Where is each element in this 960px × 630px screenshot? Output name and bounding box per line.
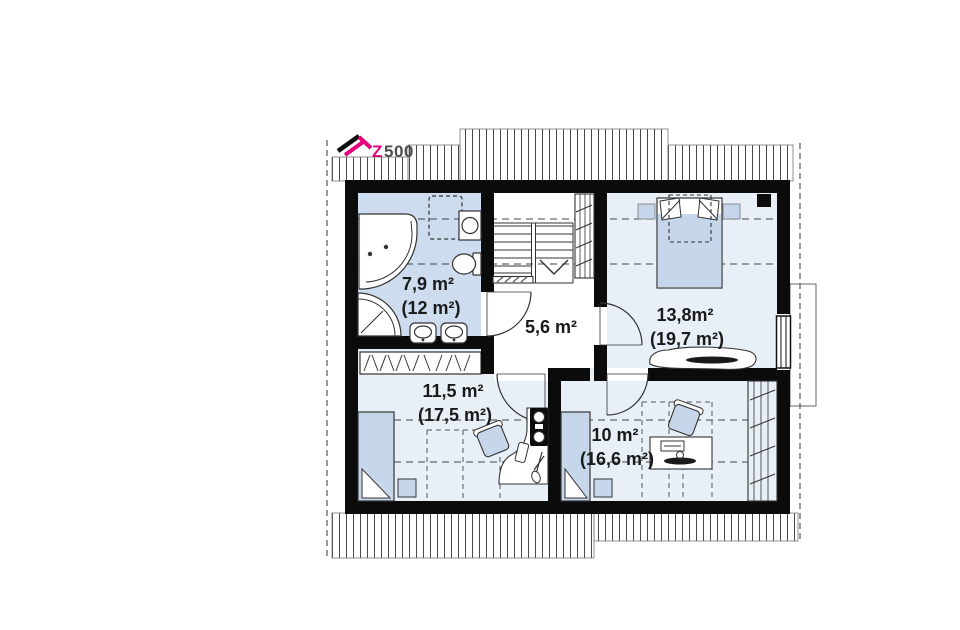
hall-area-label: 5,6 m² [525,317,577,337]
bedroom-area-label: 13,8m² [656,305,713,325]
room-left-area-label: 11,5 m² [422,381,483,401]
nightstand-icon [638,204,655,219]
toilet-icon [453,253,482,275]
bathroom-area-label: 7,9 m² [402,274,454,294]
washing-machine-icon [459,211,481,240]
room-right-area-label: 10 m² [591,425,638,445]
nightstand-icon [723,204,740,219]
side-table-icon [398,479,416,497]
logo-text: 500 [384,142,414,161]
bedroom-total-label: (19,7 m²) [650,329,724,349]
side-table-icon [594,479,612,497]
floor-plan-page: 7,9 m² (12 m²) 5,6 m² 13,8m² (19,7 m²) 1… [0,0,960,630]
bathroom-total-label: (12 m²) [401,298,460,318]
roof-window-outline [790,284,816,406]
single-bed-icon [358,412,394,501]
wardrobe-right-icon [748,381,777,501]
floor-plan: 7,9 m² (12 m²) 5,6 m² 13,8m² (19,7 m²) 1… [0,0,960,630]
window-icon [777,316,791,368]
washbasin-icon [441,323,467,343]
room-left-total-label: (17,5 m²) [418,405,492,425]
bench-icon [650,347,756,369]
logo-text-accent: Z [372,142,382,161]
closet-icon [575,194,594,278]
washbasin-icon [410,323,436,343]
room-right-total-label: (16,6 m²) [580,449,654,469]
speaker-tower-icon [530,408,548,446]
double-bed-icon [657,195,722,288]
desk-icon [650,437,712,469]
chimney-icon [757,194,771,207]
wardrobe-icon [360,352,481,374]
